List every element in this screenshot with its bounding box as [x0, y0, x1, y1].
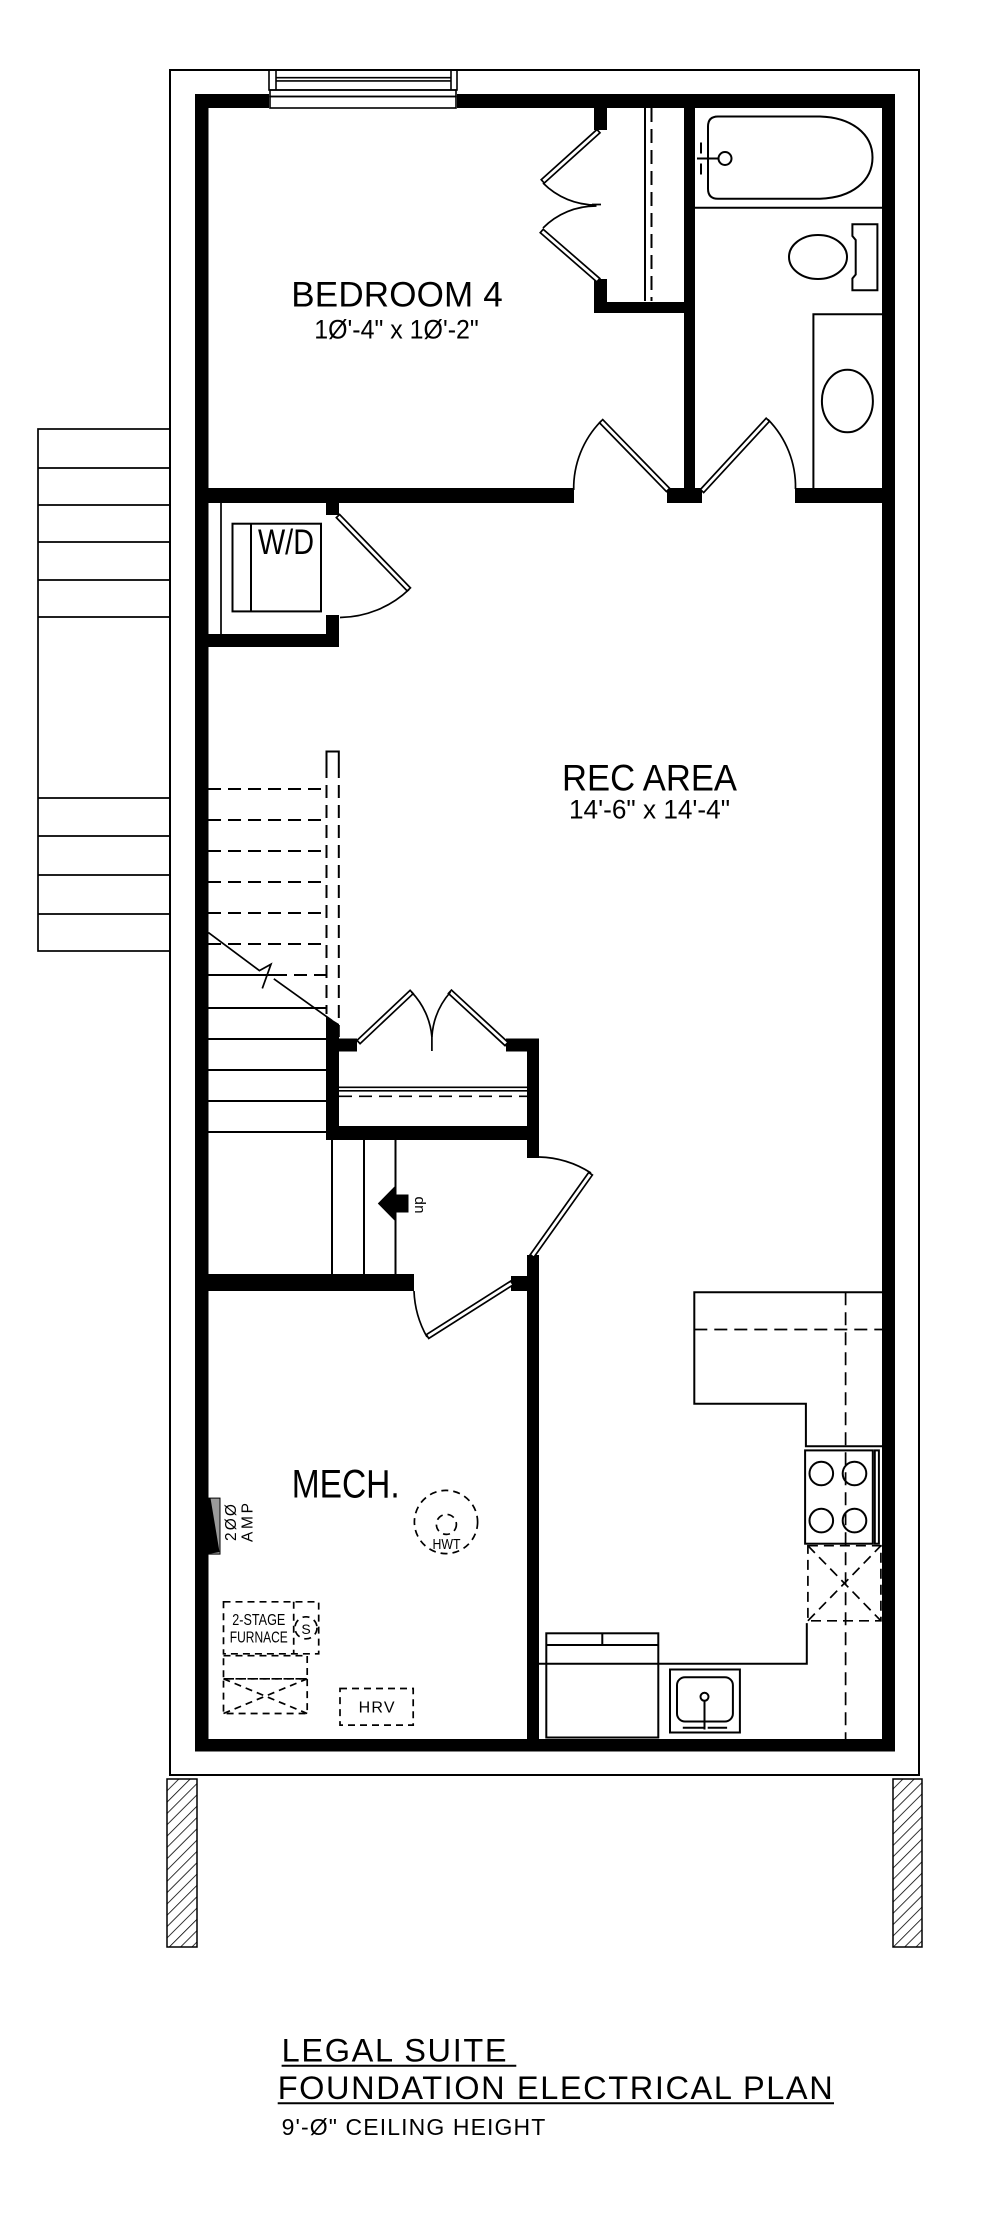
- svg-text:2-STAGE: 2-STAGE: [232, 1612, 285, 1629]
- svg-text:up: up: [410, 1197, 427, 1214]
- svg-text:HWT: HWT: [433, 1536, 461, 1553]
- svg-text:MECH.: MECH.: [292, 1463, 400, 1507]
- svg-text:S: S: [301, 1621, 310, 1637]
- svg-text:HRV: HRV: [359, 1700, 395, 1717]
- svg-text:FOUNDATION ELECTRICAL PLAN: FOUNDATION ELECTRICAL PLAN: [278, 2070, 833, 2106]
- svg-text:9'-Ø" CEILING HEIGHT: 9'-Ø" CEILING HEIGHT: [282, 2114, 546, 2140]
- svg-text:FURNACE: FURNACE: [230, 1630, 288, 1647]
- svg-text:LEGAL SUITE: LEGAL SUITE: [282, 2033, 507, 2069]
- svg-text:W/D: W/D: [258, 523, 314, 562]
- svg-text:AMP: AMP: [240, 1503, 257, 1542]
- svg-text:2ØØ: 2ØØ: [223, 1504, 240, 1541]
- svg-text:1Ø'-4" x 1Ø'-2": 1Ø'-4" x 1Ø'-2": [314, 315, 479, 345]
- svg-text:BEDROOM 4: BEDROOM 4: [291, 276, 503, 315]
- svg-text:REC AREA: REC AREA: [562, 758, 737, 799]
- svg-text:14'-6" x 14'-4": 14'-6" x 14'-4": [569, 795, 730, 825]
